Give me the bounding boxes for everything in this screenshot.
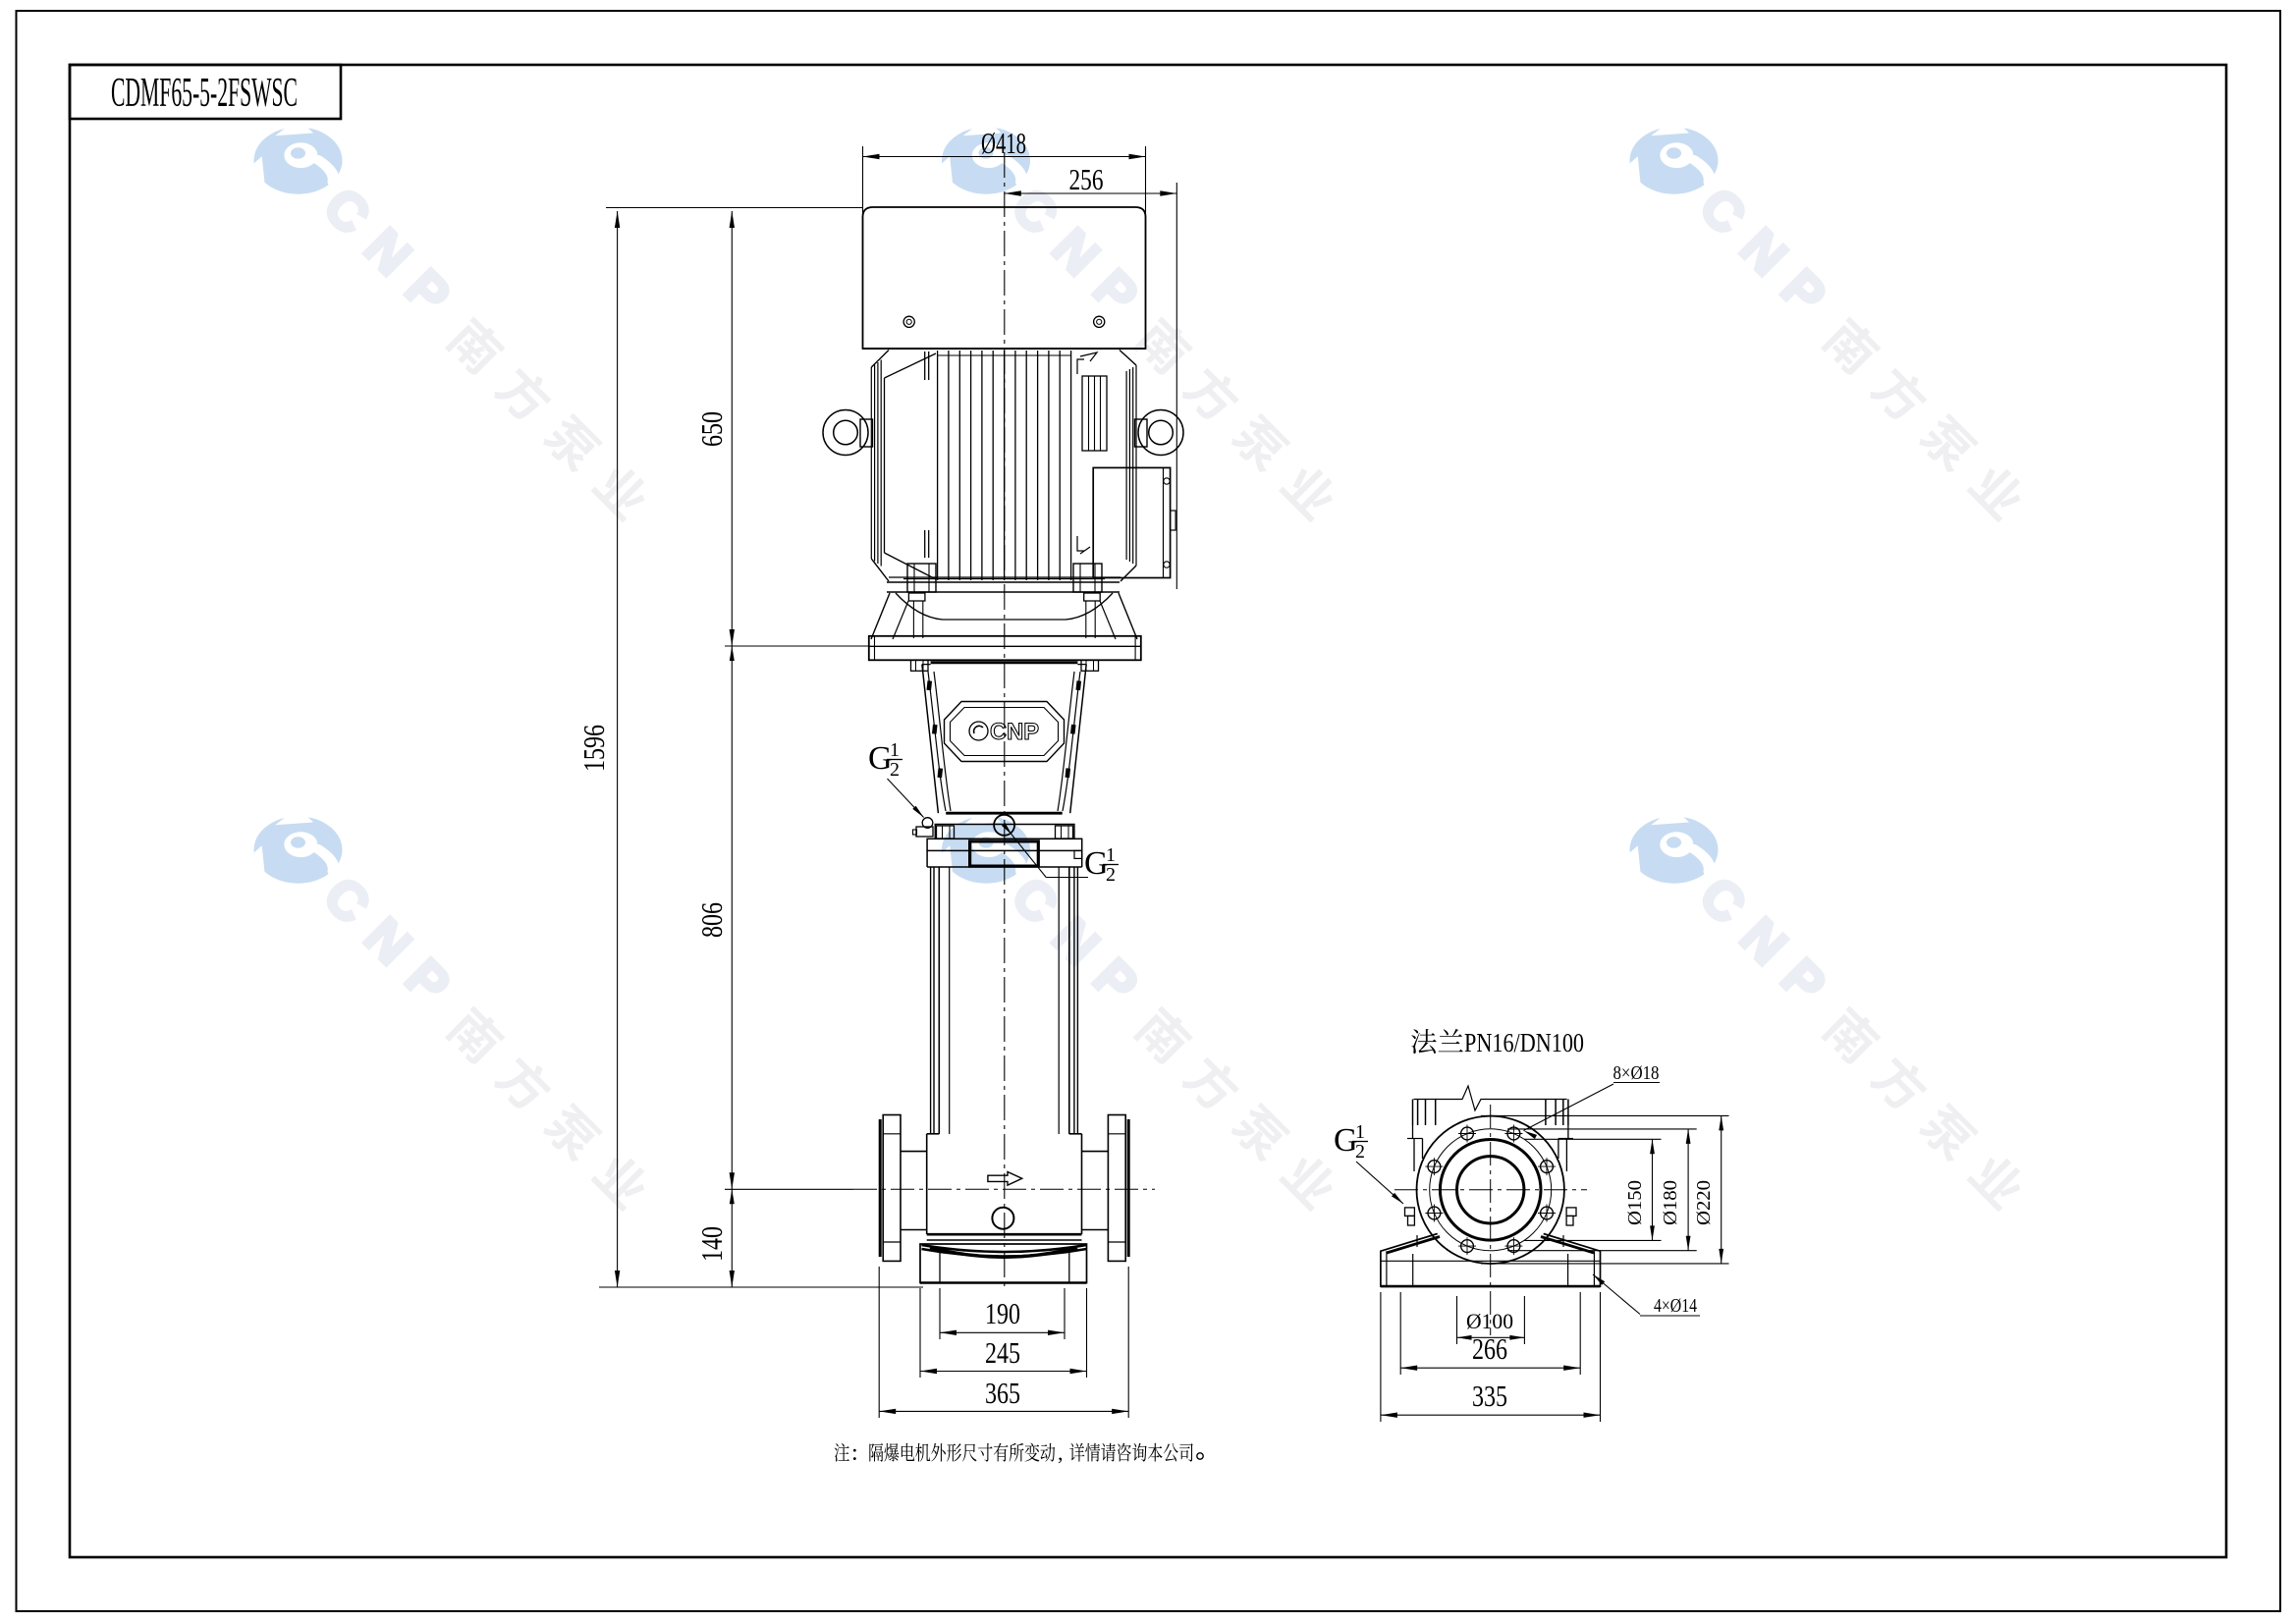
svg-text:2: 2 xyxy=(890,759,900,781)
svg-text::: : xyxy=(851,1440,858,1466)
svg-text:1: 1 xyxy=(1355,1121,1365,1143)
svg-text:CDMF65-5-2FSWSC: CDMF65-5-2FSWSC xyxy=(111,71,298,116)
svg-text:G: G xyxy=(1334,1122,1358,1159)
svg-text:PN16/DN100: PN16/DN100 xyxy=(1464,1028,1584,1057)
svg-text:4×Ø14: 4×Ø14 xyxy=(1654,1295,1697,1317)
svg-text:Ø180: Ø180 xyxy=(1660,1180,1681,1225)
svg-text:Ø100: Ø100 xyxy=(1466,1309,1513,1333)
svg-text:1: 1 xyxy=(890,739,900,761)
svg-text:256: 256 xyxy=(1069,162,1104,196)
svg-text:365: 365 xyxy=(985,1376,1020,1410)
svg-text:G: G xyxy=(1084,845,1109,882)
svg-text:1596: 1596 xyxy=(576,725,611,772)
svg-text:2: 2 xyxy=(1355,1141,1365,1163)
svg-text:G: G xyxy=(868,740,893,777)
svg-text:245: 245 xyxy=(985,1335,1020,1370)
svg-text:CNP: CNP xyxy=(990,719,1039,745)
svg-text:Ø418: Ø418 xyxy=(981,126,1026,160)
svg-text:Ø150: Ø150 xyxy=(1624,1180,1646,1225)
svg-text:650: 650 xyxy=(694,411,729,447)
svg-text:806: 806 xyxy=(694,902,729,938)
svg-text:335: 335 xyxy=(1472,1379,1507,1413)
svg-text:140: 140 xyxy=(694,1226,729,1262)
svg-text:,: , xyxy=(1058,1440,1064,1465)
svg-text:Ø220: Ø220 xyxy=(1693,1180,1715,1225)
svg-text:2: 2 xyxy=(1106,864,1116,886)
svg-text:8×Ø18: 8×Ø18 xyxy=(1613,1062,1660,1084)
svg-text:1: 1 xyxy=(1106,844,1116,866)
svg-text:266: 266 xyxy=(1472,1331,1507,1366)
svg-text:190: 190 xyxy=(985,1296,1020,1330)
